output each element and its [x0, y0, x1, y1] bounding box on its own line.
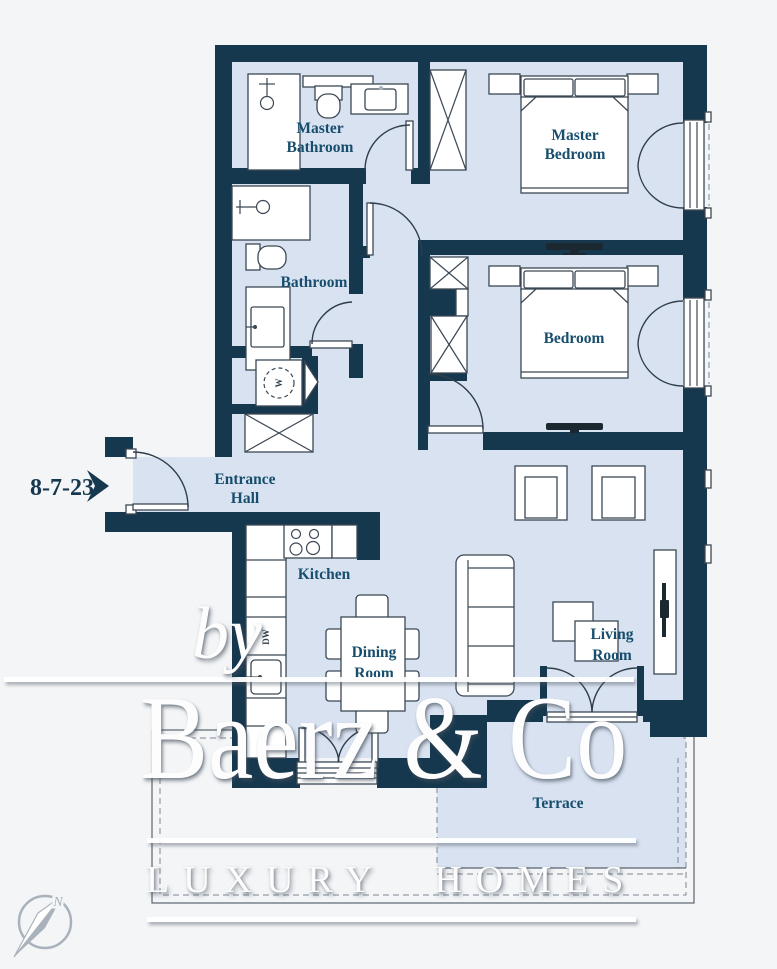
bathroom-label: Bathroom — [281, 274, 348, 291]
living-room-label: Living — [590, 626, 633, 643]
bedroom-label: Bedroom — [544, 330, 605, 347]
unit-number-label: 8-7-23 — [30, 475, 94, 501]
double-bed — [521, 268, 628, 378]
master-bedroom-label: Bedroom — [545, 146, 606, 163]
tv-unit — [654, 550, 676, 674]
nightstand — [489, 74, 520, 94]
armchair — [515, 466, 567, 520]
compass-icon: N — [14, 895, 71, 957]
kitchen-label: Kitchen — [298, 566, 351, 583]
wardrobe-bedroom-2 — [431, 316, 467, 373]
watermark-divider-line — [147, 917, 636, 922]
wardrobe-bedroom-1 — [430, 257, 468, 289]
chair — [356, 595, 388, 619]
washer-label: W — [274, 379, 284, 388]
vanity-sink — [246, 287, 290, 370]
master-bathroom-label: Bathroom — [287, 139, 354, 156]
master-bedroom-label: Master — [551, 127, 598, 144]
toilet-icon — [246, 244, 286, 270]
floorplan-page: W — [0, 0, 777, 969]
watermark-tagline: LUXURY HOMES — [146, 858, 637, 902]
living-room-label: Room — [592, 647, 632, 664]
master-bathroom-label: Master — [296, 120, 343, 137]
wardrobe-entrance — [245, 414, 313, 452]
door-jamb — [126, 449, 136, 458]
vanity-sink — [351, 84, 408, 114]
toilet-icon — [315, 86, 342, 118]
entrance-hall-label: Hall — [231, 490, 260, 507]
entrance-hall-label: Entrance — [214, 471, 275, 488]
watermark-brand-name: Baerz & Co — [140, 672, 627, 804]
nightstand — [489, 266, 520, 286]
compass-north-label: N — [52, 895, 63, 910]
armchair — [592, 466, 645, 520]
stove-icon — [284, 525, 332, 558]
entrance-marker: 8-7-23 — [30, 470, 109, 502]
floorplan-drawing: W — [0, 0, 777, 969]
nightstand — [627, 74, 658, 94]
wardrobe-master — [430, 70, 466, 170]
shower — [232, 186, 310, 240]
dishwasher-label: DW — [261, 629, 271, 645]
dining-room-label: Dining — [352, 644, 397, 661]
watermark-by-text: by — [192, 592, 262, 677]
watermark-divider-line — [147, 838, 636, 843]
nightstand — [627, 266, 658, 286]
entrance-door-leaf — [133, 504, 188, 510]
